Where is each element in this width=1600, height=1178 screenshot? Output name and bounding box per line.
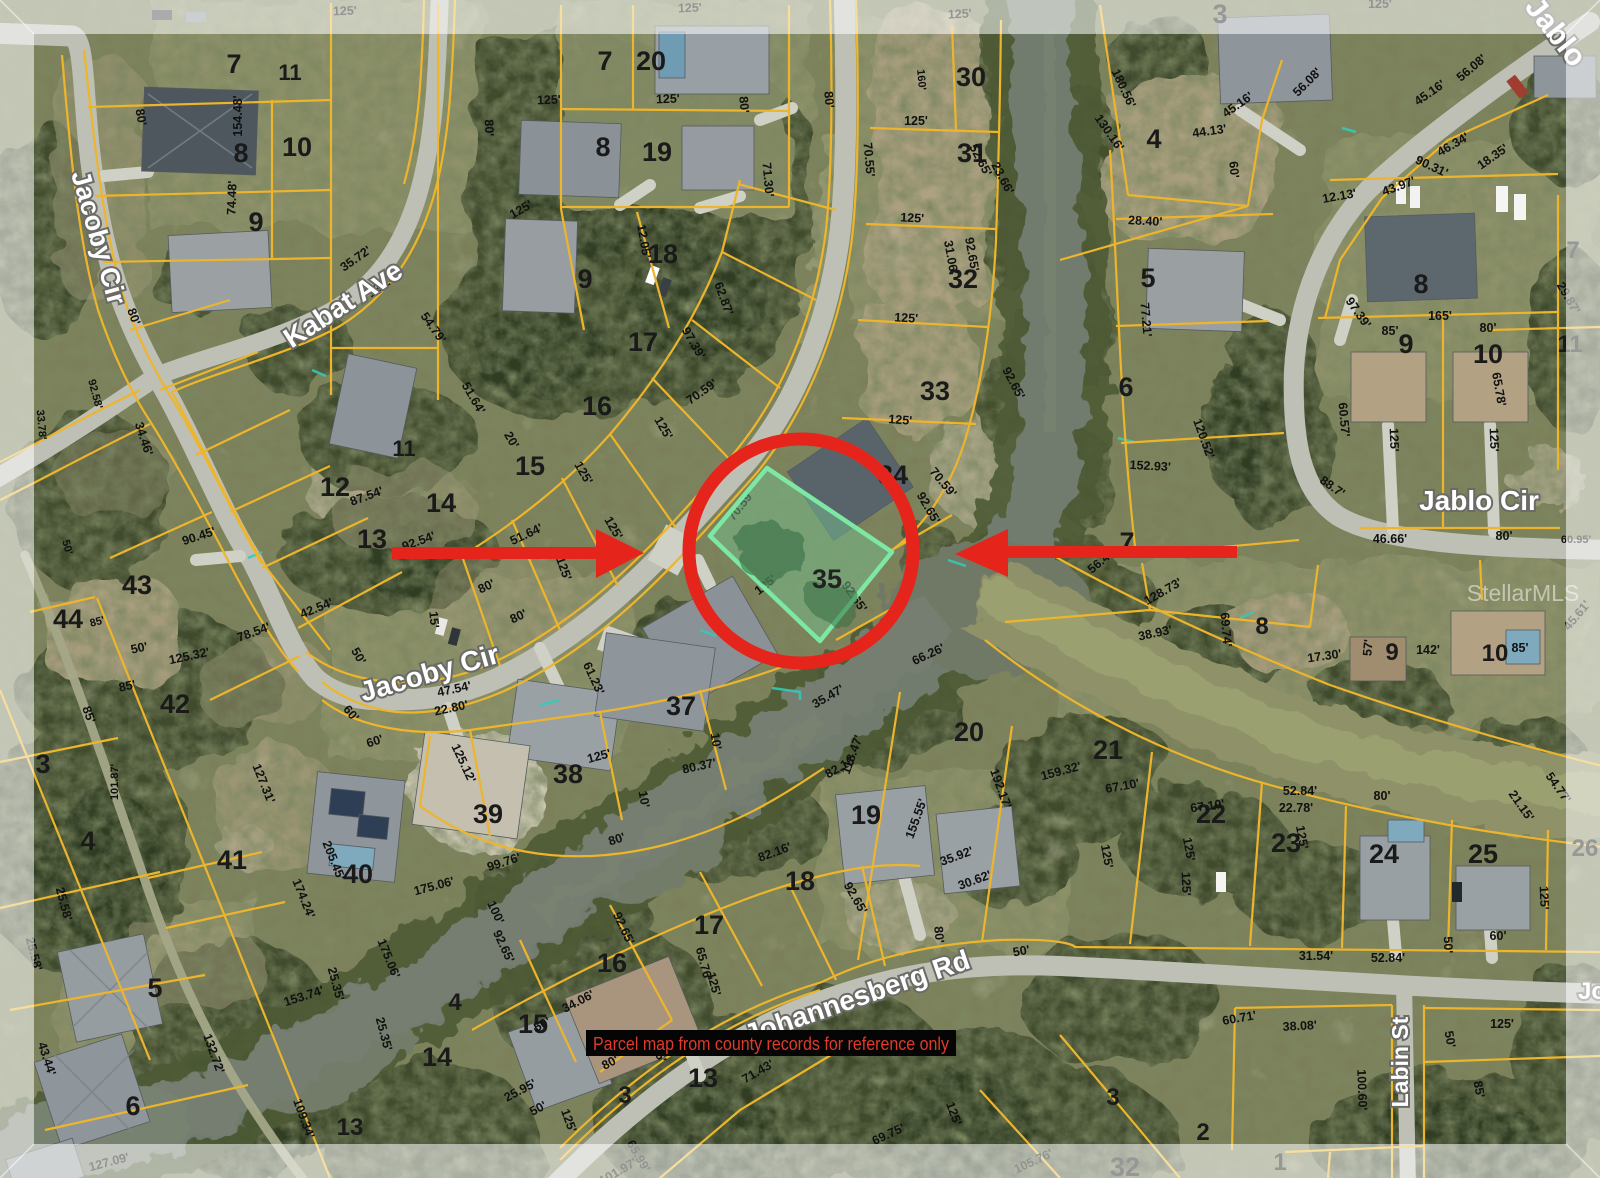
svg-text:10: 10: [1482, 640, 1509, 667]
svg-text:8: 8: [233, 138, 248, 168]
svg-text:11: 11: [392, 436, 415, 461]
svg-text:Parcel map from county records: Parcel map from county records for refer…: [593, 1033, 950, 1054]
svg-text:30: 30: [956, 62, 986, 92]
svg-text:60': 60': [1490, 929, 1507, 943]
svg-text:15: 15: [515, 451, 545, 481]
svg-text:41: 41: [217, 845, 247, 875]
svg-text:3: 3: [1106, 1084, 1119, 1111]
svg-text:25: 25: [1468, 839, 1498, 869]
svg-text:StellarMLS: StellarMLS: [1467, 580, 1579, 606]
svg-text:28.40': 28.40': [1128, 213, 1163, 229]
svg-text:9: 9: [1385, 639, 1398, 666]
svg-text:80': 80': [736, 96, 751, 114]
svg-text:57': 57': [1360, 639, 1375, 657]
svg-text:5: 5: [1140, 263, 1155, 293]
svg-text:46.66': 46.66': [1373, 532, 1407, 546]
svg-text:165': 165': [1428, 309, 1452, 323]
svg-text:50': 50': [1442, 1030, 1459, 1049]
svg-text:7: 7: [597, 46, 612, 76]
svg-text:125': 125': [894, 310, 919, 325]
svg-text:38.08': 38.08': [1282, 1018, 1317, 1034]
svg-text:14: 14: [426, 488, 456, 518]
svg-text:13: 13: [337, 1114, 364, 1141]
svg-text:35: 35: [812, 564, 842, 594]
svg-text:125': 125': [656, 92, 680, 107]
svg-text:11: 11: [278, 60, 301, 85]
svg-text:44: 44: [53, 604, 83, 634]
svg-text:74.48': 74.48': [224, 180, 239, 215]
svg-text:10': 10': [708, 732, 725, 751]
svg-text:60': 60': [1226, 161, 1241, 179]
svg-text:100.60': 100.60': [1354, 1069, 1369, 1111]
svg-text:9: 9: [577, 264, 592, 294]
svg-text:2: 2: [1196, 1119, 1209, 1146]
svg-text:50': 50': [1012, 943, 1031, 960]
svg-text:85': 85': [1382, 324, 1399, 338]
svg-text:80': 80': [133, 108, 150, 127]
svg-text:19: 19: [851, 800, 881, 830]
svg-text:17: 17: [694, 910, 724, 940]
svg-text:9: 9: [1398, 329, 1413, 359]
svg-text:4: 4: [1146, 124, 1161, 154]
svg-text:22.78': 22.78': [1279, 801, 1313, 815]
svg-text:125': 125': [900, 210, 925, 225]
svg-text:80': 80': [1480, 321, 1497, 335]
svg-text:5: 5: [147, 973, 162, 1003]
svg-text:125': 125': [537, 93, 561, 108]
svg-text:12: 12: [320, 472, 350, 502]
svg-text:125': 125': [1387, 428, 1402, 452]
svg-text:20: 20: [954, 717, 984, 747]
svg-text:10: 10: [282, 132, 312, 162]
svg-text:80': 80': [1496, 529, 1513, 543]
svg-text:43: 43: [122, 570, 152, 600]
svg-text:125': 125': [1537, 886, 1552, 910]
svg-text:8: 8: [595, 132, 610, 162]
svg-text:6: 6: [1118, 372, 1133, 402]
svg-text:39: 39: [473, 799, 503, 829]
svg-text:8: 8: [1413, 269, 1428, 299]
svg-text:16: 16: [582, 391, 612, 421]
svg-text:69.74': 69.74': [1218, 612, 1235, 647]
svg-text:24: 24: [1369, 839, 1399, 869]
svg-text:101.87': 101.87': [109, 763, 121, 800]
svg-text:142': 142': [1416, 643, 1440, 657]
svg-text:4: 4: [80, 826, 95, 856]
svg-text:17: 17: [628, 327, 658, 357]
svg-text:80': 80': [1374, 789, 1391, 803]
svg-text:15': 15': [426, 611, 441, 629]
svg-text:125': 125': [904, 114, 928, 128]
svg-text:13: 13: [357, 524, 387, 554]
svg-text:52.84': 52.84': [1283, 784, 1317, 798]
svg-text:85': 85': [1471, 1080, 1488, 1099]
svg-text:38: 38: [553, 759, 583, 789]
svg-text:52.84': 52.84': [1371, 951, 1405, 965]
svg-text:42: 42: [160, 689, 190, 719]
svg-text:33: 33: [920, 376, 950, 406]
svg-text:3: 3: [35, 749, 50, 779]
svg-text:37: 37: [666, 691, 696, 721]
svg-text:60.57': 60.57': [1336, 402, 1353, 437]
svg-text:125': 125': [1487, 428, 1502, 452]
svg-text:10: 10: [1473, 339, 1503, 369]
svg-text:9: 9: [248, 207, 263, 237]
svg-text:20: 20: [636, 46, 666, 76]
svg-text:80': 80': [931, 926, 946, 944]
svg-text:Jablo Cir: Jablo Cir: [1419, 485, 1539, 516]
svg-text:85': 85': [1512, 641, 1529, 655]
svg-text:125': 125': [888, 412, 913, 428]
svg-text:154.48': 154.48': [231, 95, 245, 136]
svg-text:19: 19: [642, 137, 672, 167]
svg-text:160': 160': [914, 69, 928, 91]
svg-text:Labin St: Labin St: [1387, 1016, 1413, 1107]
svg-text:7: 7: [226, 49, 241, 79]
svg-text:21: 21: [1093, 735, 1123, 765]
svg-text:31.54': 31.54': [1299, 949, 1333, 963]
svg-text:80': 80': [482, 119, 497, 136]
svg-text:3: 3: [618, 1082, 631, 1109]
svg-text:18: 18: [785, 866, 815, 896]
svg-text:14: 14: [422, 1042, 452, 1072]
svg-text:70.55': 70.55': [861, 142, 878, 177]
svg-text:16: 16: [597, 948, 627, 978]
svg-text:10': 10': [636, 790, 653, 809]
svg-text:77.21': 77.21': [1138, 302, 1155, 337]
svg-text:152.93': 152.93': [1129, 458, 1171, 474]
svg-text:4: 4: [448, 989, 462, 1016]
svg-text:71.30': 71.30': [760, 162, 777, 197]
svg-text:13: 13: [688, 1063, 718, 1093]
svg-text:50': 50': [1441, 936, 1456, 953]
svg-text:125': 125': [1490, 1017, 1514, 1031]
svg-text:80': 80': [821, 91, 836, 109]
svg-text:6: 6: [125, 1091, 140, 1121]
svg-text:8: 8: [1255, 613, 1268, 640]
svg-text:125': 125': [1179, 872, 1194, 896]
